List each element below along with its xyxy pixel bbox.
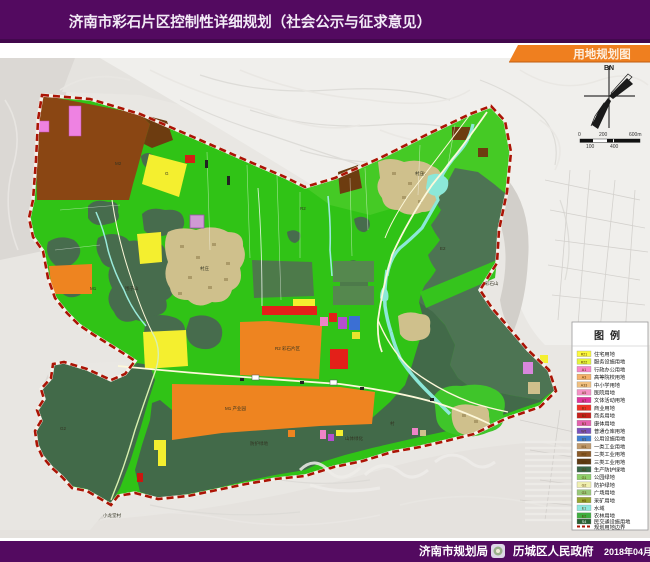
svg-text:A33: A33 bbox=[581, 383, 587, 387]
svg-text:村庄: 村庄 bbox=[200, 265, 209, 272]
svg-text:图例: 图例 bbox=[594, 329, 626, 342]
svg-text:济南市彩石片区控制性详细规划（社会公示与征求意见）: 济南市彩石片区控制性详细规划（社会公示与征求意见） bbox=[69, 13, 432, 31]
svg-text:G2: G2 bbox=[582, 484, 587, 488]
svg-text:医院用地: 医院用地 bbox=[594, 389, 615, 397]
svg-text:600m: 600m bbox=[629, 132, 642, 138]
svg-text:G1: G1 bbox=[582, 476, 587, 480]
svg-text:服务设施用地: 服务设施用地 bbox=[594, 358, 625, 366]
svg-text:A7: A7 bbox=[582, 399, 586, 403]
svg-text:U1: U1 bbox=[582, 437, 587, 441]
svg-text:W1: W1 bbox=[581, 430, 586, 434]
svg-text:R2 彩石片区: R2 彩石片区 bbox=[275, 345, 301, 352]
svg-text:2018年04月: 2018年04月 bbox=[604, 546, 650, 557]
svg-text:A1: A1 bbox=[582, 368, 586, 372]
svg-text:G3: G3 bbox=[582, 491, 587, 495]
svg-text:规划用地边界: 规划用地边界 bbox=[594, 523, 625, 531]
svg-text:山体绿化: 山体绿化 bbox=[345, 435, 363, 442]
svg-text:公用设施用地: 公用设施用地 bbox=[594, 435, 625, 443]
svg-text:村: 村 bbox=[390, 420, 395, 426]
svg-text:M2: M2 bbox=[115, 161, 122, 166]
svg-text:BN: BN bbox=[604, 65, 614, 72]
svg-text:防护绿地: 防护绿地 bbox=[250, 440, 268, 447]
svg-text:M1 产业园: M1 产业园 bbox=[225, 405, 247, 412]
svg-text:B2: B2 bbox=[582, 414, 586, 418]
svg-text:M2: M2 bbox=[582, 453, 587, 457]
svg-text:R22: R22 bbox=[581, 360, 588, 364]
svg-text:村庄: 村庄 bbox=[415, 170, 424, 177]
svg-text:S4: S4 bbox=[582, 520, 586, 524]
svg-text:200: 200 bbox=[599, 132, 608, 138]
svg-text:生产防护绿地: 生产防护绿地 bbox=[594, 466, 625, 474]
svg-text:广场用地: 广场用地 bbox=[594, 489, 615, 497]
svg-text:M3: M3 bbox=[582, 460, 587, 464]
svg-text:住宅用地: 住宅用地 bbox=[594, 350, 615, 358]
svg-text:0: 0 bbox=[578, 132, 581, 138]
svg-text:康体用地: 康体用地 bbox=[594, 419, 615, 427]
svg-text:E2: E2 bbox=[440, 246, 446, 251]
svg-text:防护绿地: 防护绿地 bbox=[594, 481, 615, 489]
svg-text:围子山: 围子山 bbox=[125, 285, 139, 292]
svg-text:G: G bbox=[165, 171, 169, 176]
svg-text:E2: E2 bbox=[582, 514, 586, 518]
svg-text:三类工业用地: 三类工业用地 bbox=[594, 458, 625, 466]
svg-text:B1: B1 bbox=[582, 407, 586, 411]
svg-text:H5: H5 bbox=[582, 499, 587, 503]
svg-text:100: 100 bbox=[586, 144, 595, 150]
svg-text:水域: 水域 bbox=[594, 504, 604, 512]
svg-text:R2: R2 bbox=[300, 206, 306, 211]
svg-text:A5: A5 bbox=[582, 391, 586, 395]
svg-text:G2: G2 bbox=[60, 426, 67, 431]
svg-text:采矿用地: 采矿用地 bbox=[594, 496, 615, 504]
svg-text:商务用地: 商务用地 bbox=[594, 412, 615, 420]
svg-text:中小学用地: 中小学用地 bbox=[594, 381, 620, 389]
svg-text:B3: B3 bbox=[582, 422, 586, 426]
svg-text:A3: A3 bbox=[582, 376, 586, 380]
svg-text:历城区人民政府: 历城区人民政府 bbox=[513, 544, 594, 558]
svg-text:商业用地: 商业用地 bbox=[594, 404, 615, 412]
svg-text:400: 400 bbox=[610, 144, 619, 150]
svg-text:M1: M1 bbox=[90, 286, 97, 291]
svg-text:二类工业用地: 二类工业用地 bbox=[594, 450, 625, 458]
svg-text:农林用地: 农林用地 bbox=[594, 512, 615, 520]
svg-text:彩石山: 彩石山 bbox=[485, 280, 499, 287]
svg-text:普通仓库用地: 普通仓库用地 bbox=[594, 427, 625, 435]
svg-text:一类工业用地: 一类工业用地 bbox=[594, 442, 625, 450]
svg-text:高等院校用地: 高等院校用地 bbox=[594, 373, 625, 381]
svg-text:公园绿地: 公园绿地 bbox=[594, 473, 615, 481]
svg-text:小龙堂村: 小龙堂村 bbox=[103, 512, 121, 519]
svg-text:文体活动用地: 文体活动用地 bbox=[594, 396, 625, 404]
svg-text:R21: R21 bbox=[581, 353, 588, 357]
svg-text:G2: G2 bbox=[582, 468, 587, 472]
svg-text:E1: E1 bbox=[582, 507, 586, 511]
svg-text:M1: M1 bbox=[582, 445, 587, 449]
svg-text:用地规划图: 用地规划图 bbox=[572, 47, 631, 61]
svg-text:行政办公用地: 行政办公用地 bbox=[594, 365, 625, 373]
svg-text:济南市规划局: 济南市规划局 bbox=[419, 544, 488, 558]
